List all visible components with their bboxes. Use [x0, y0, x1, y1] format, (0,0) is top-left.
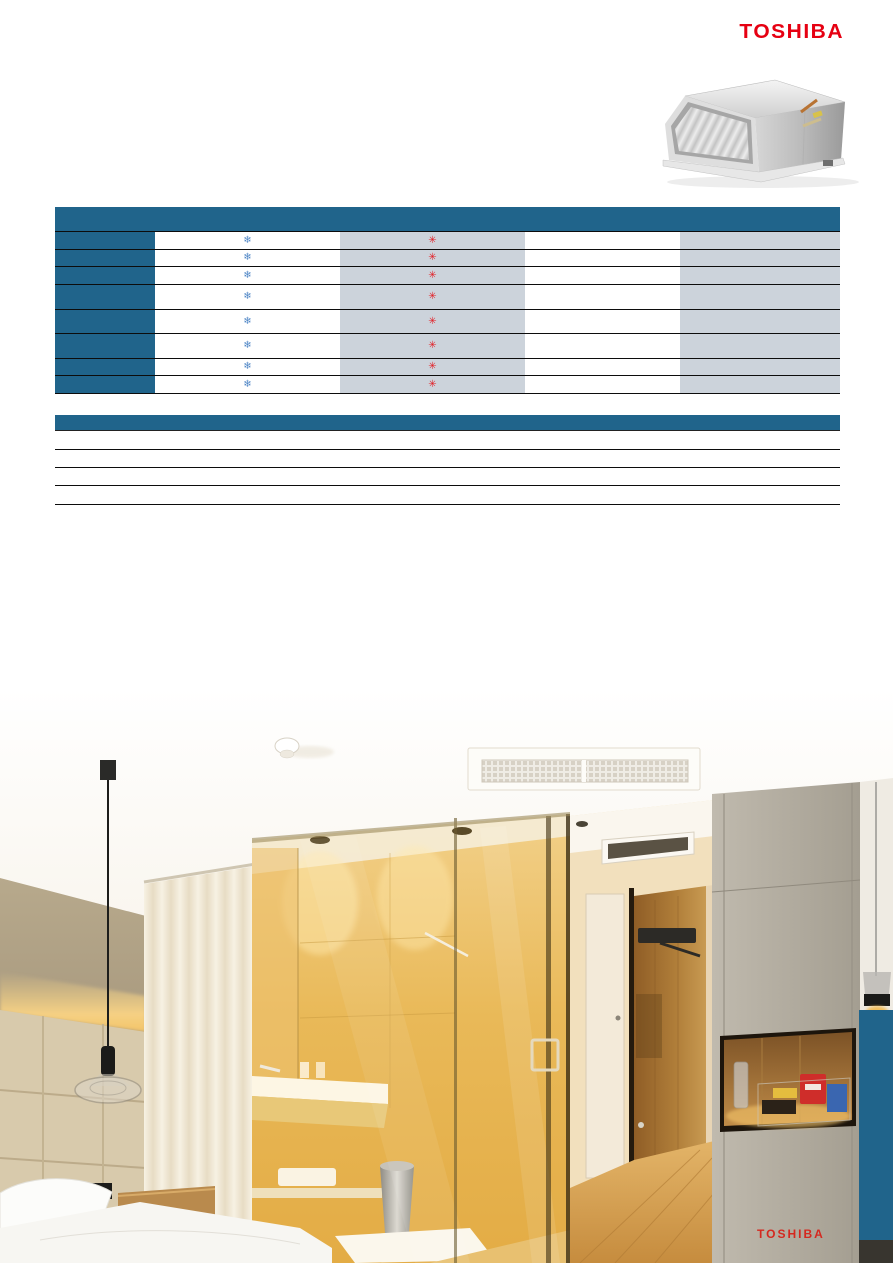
heat-asterisk-icon: ✳	[428, 253, 436, 263]
heat-asterisk-icon: ✳	[428, 292, 436, 302]
door-shadow-panel	[636, 994, 662, 1058]
spec-table-header	[55, 207, 840, 232]
snowflake-icon: ❄	[243, 317, 251, 327]
info-row	[55, 450, 840, 468]
spec-row-label-cell	[55, 285, 155, 309]
ducted-unit-product-image	[655, 74, 893, 190]
hotel-room-photo: TOSHIBA	[0, 688, 893, 1263]
unit-bracket	[823, 160, 833, 166]
drinking-glass	[316, 1062, 325, 1078]
snowflake-icon: ❄	[243, 236, 251, 246]
wardrobe	[712, 782, 860, 1263]
heat-asterisk-icon: ✳	[428, 362, 436, 372]
drinking-glass	[300, 1062, 309, 1078]
hallway	[570, 800, 714, 1263]
entry-door-handle	[638, 1122, 644, 1128]
detector-base	[280, 750, 294, 758]
snack-tray	[762, 1100, 796, 1114]
spec-row: ❄ ✳	[55, 285, 840, 310]
right-edge	[859, 778, 893, 1263]
lower-shelf	[252, 1188, 382, 1198]
pendant-socket	[101, 1046, 115, 1076]
snowflake-icon: ❄	[243, 253, 251, 263]
photo-toshiba-watermark: TOSHIBA	[757, 1227, 825, 1241]
info-table-header	[55, 415, 840, 431]
spec-table: ❄ ✳ ❄ ✳ ❄ ✳ ❄ ✳ ❄ ✳	[55, 207, 840, 394]
catalog-page: TOSHIBA ❄ ✳	[0, 0, 893, 1263]
spec-row: ❄ ✳	[55, 359, 840, 376]
snack-box-blue	[827, 1084, 847, 1112]
heat-asterisk-icon: ✳	[428, 317, 436, 327]
water-carafe	[734, 1062, 748, 1108]
glass-bathroom	[252, 812, 570, 1263]
spec-row-label-cell	[55, 267, 155, 284]
spec-row: ❄ ✳	[55, 376, 840, 394]
heat-asterisk-icon: ✳	[428, 380, 436, 390]
cord-ceiling-mount	[100, 760, 116, 780]
info-row	[55, 486, 840, 505]
glass-panel-edge	[454, 818, 457, 1263]
white-door	[586, 894, 624, 1178]
blue-side-tab	[859, 1010, 893, 1240]
heat-asterisk-icon: ✳	[428, 271, 436, 281]
toshiba-logo: TOSHIBA	[739, 21, 844, 44]
spec-row-label-cell	[55, 310, 155, 333]
door-gap	[629, 888, 634, 1188]
spec-row: ❄ ✳	[55, 334, 840, 359]
snack-pack-yellow	[773, 1088, 797, 1098]
spec-row-label-cell	[55, 250, 155, 266]
snowflake-icon: ❄	[243, 380, 251, 390]
spec-row: ❄ ✳	[55, 250, 840, 267]
glass-wall-corner	[566, 814, 570, 1263]
info-table	[55, 415, 840, 505]
snowflake-icon: ❄	[243, 292, 251, 302]
snowflake-icon: ❄	[243, 341, 251, 351]
snowflake-icon: ❄	[243, 362, 251, 372]
snowflake-icon: ❄	[243, 271, 251, 281]
heat-asterisk-icon: ✳	[428, 341, 436, 351]
spec-row: ❄ ✳	[55, 267, 840, 285]
wall-air-vent	[468, 748, 700, 790]
spec-row-label-cell	[55, 376, 155, 393]
door-closer	[638, 928, 696, 943]
pendant-socket-right	[864, 994, 890, 1006]
spec-row: ❄ ✳	[55, 232, 840, 250]
heat-asterisk-icon: ✳	[428, 236, 436, 246]
spec-row: ❄ ✳	[55, 310, 840, 334]
snack-box-label	[805, 1084, 821, 1090]
spec-row-label-cell	[55, 359, 155, 375]
dark-corner	[859, 1240, 893, 1263]
white-door-handle	[616, 1016, 621, 1021]
spec-row-label-cell	[55, 232, 155, 249]
info-row	[55, 468, 840, 486]
towel-stack	[278, 1168, 336, 1186]
spotlight-glow	[377, 846, 453, 950]
hallway-downlight	[576, 821, 588, 827]
wardrobe-panel	[712, 782, 860, 1263]
info-row	[55, 431, 840, 450]
spec-row-label-cell	[55, 334, 155, 358]
